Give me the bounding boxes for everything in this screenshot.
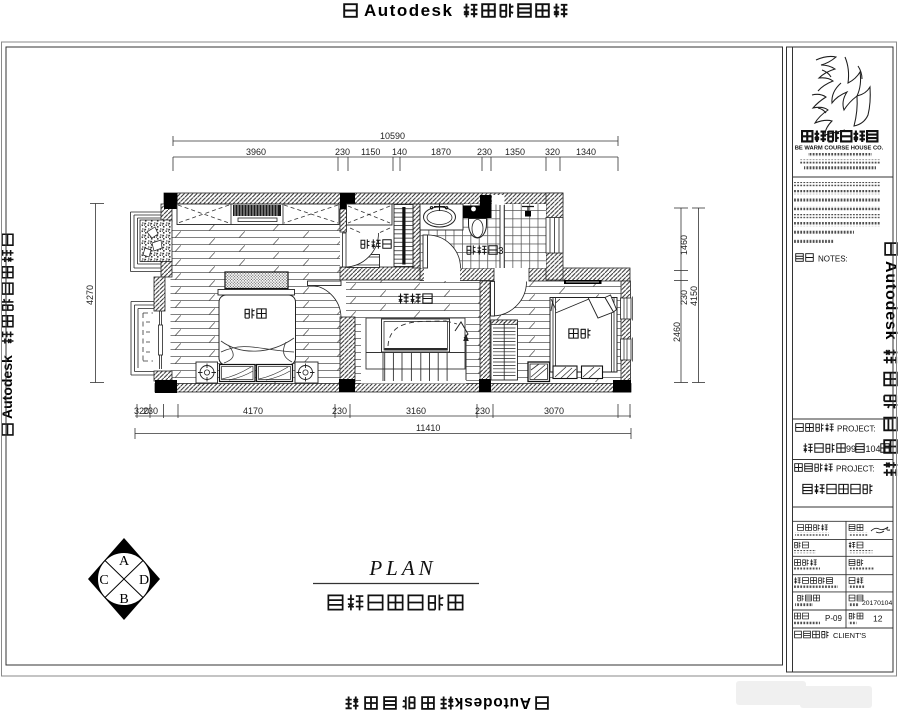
svg-text:D: D — [139, 573, 149, 588]
svg-text:3160: 3160 — [406, 406, 426, 416]
svg-text:PROJECT:: PROJECT: — [836, 465, 875, 474]
svg-text:230: 230 — [143, 406, 158, 416]
svg-text:C: C — [99, 573, 108, 588]
svg-text:BE WARM COURSE HOUSE CO.: BE WARM COURSE HOUSE CO. — [795, 146, 884, 152]
svg-text:4150: 4150 — [689, 286, 699, 306]
svg-text:P-09: P-09 — [825, 614, 842, 623]
svg-text:230: 230 — [475, 406, 490, 416]
svg-text:1460: 1460 — [679, 235, 689, 255]
svg-text:Autodesk: Autodesk — [0, 355, 15, 419]
svg-text:11410: 11410 — [416, 423, 440, 433]
svg-text:1150: 1150 — [361, 147, 380, 157]
svg-text:20170104: 20170104 — [862, 600, 892, 607]
svg-text:230: 230 — [477, 147, 492, 157]
svg-text:230: 230 — [335, 147, 350, 157]
svg-text:3: 3 — [498, 246, 504, 257]
svg-text:A: A — [119, 554, 130, 569]
svg-text:4270: 4270 — [85, 285, 95, 305]
svg-text:320: 320 — [545, 147, 560, 157]
svg-text:PROJECT:: PROJECT: — [837, 425, 876, 434]
svg-text:99: 99 — [846, 444, 856, 454]
svg-text:4170: 4170 — [243, 406, 263, 416]
svg-text:1350: 1350 — [505, 147, 525, 157]
svg-text:1870: 1870 — [431, 147, 451, 157]
svg-text:12: 12 — [873, 614, 883, 624]
svg-text:NOTES:: NOTES: — [818, 255, 848, 264]
svg-text:3960: 3960 — [246, 147, 266, 157]
svg-text:10590: 10590 — [380, 131, 405, 141]
svg-text:Autodesk: Autodesk — [454, 694, 531, 711]
svg-text:CLIENT'S: CLIENT'S — [833, 631, 866, 640]
svg-text:B: B — [119, 592, 128, 607]
svg-text:PLAN: PLAN — [368, 556, 436, 580]
svg-text:140: 140 — [392, 147, 407, 157]
svg-text:104: 104 — [866, 444, 881, 454]
svg-text:3070: 3070 — [544, 406, 564, 416]
svg-text:1340: 1340 — [576, 147, 596, 157]
svg-text:230: 230 — [679, 290, 689, 305]
svg-text:230: 230 — [332, 406, 347, 416]
svg-text:Autodesk: Autodesk — [364, 1, 453, 20]
svg-text:2460: 2460 — [672, 322, 682, 342]
